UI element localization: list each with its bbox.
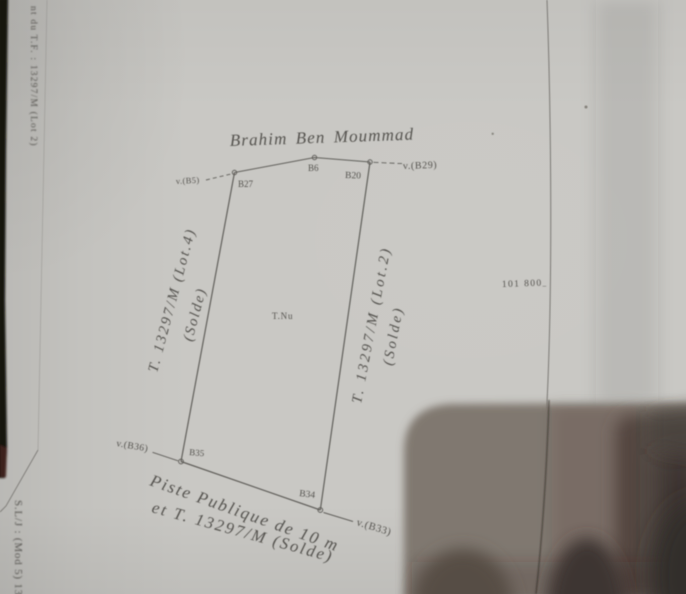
- svg-text:v.(B29): v.(B29): [403, 160, 438, 172]
- svg-text:Brahim Ben Moummad: Brahim Ben Moummad: [229, 125, 414, 150]
- svg-text:T.Nu: T.Nu: [272, 311, 293, 321]
- svg-text:nt du T.F. : 13297/M (Lot 2): nt du T.F. : 13297/M (Lot 2): [28, 6, 39, 147]
- svg-text:(Solde): (Solde): [180, 286, 210, 343]
- svg-text:B6: B6: [308, 163, 319, 173]
- svg-text:v.(B5): v.(B5): [176, 175, 200, 186]
- svg-text:v.(B36): v.(B36): [115, 438, 149, 454]
- svg-text:S.L/J : (Mod 5) 131: S.L/J : (Mod 5) 131: [12, 500, 24, 594]
- svg-text:B34: B34: [299, 489, 316, 501]
- svg-text:B20: B20: [345, 171, 361, 182]
- svg-text:(Solde): (Solde): [380, 305, 407, 367]
- svg-text:v.(B33): v.(B33): [355, 517, 393, 538]
- svg-text:B35: B35: [189, 447, 205, 458]
- svg-text:101 800_: 101 800_: [502, 278, 548, 290]
- svg-text:B27: B27: [238, 179, 254, 189]
